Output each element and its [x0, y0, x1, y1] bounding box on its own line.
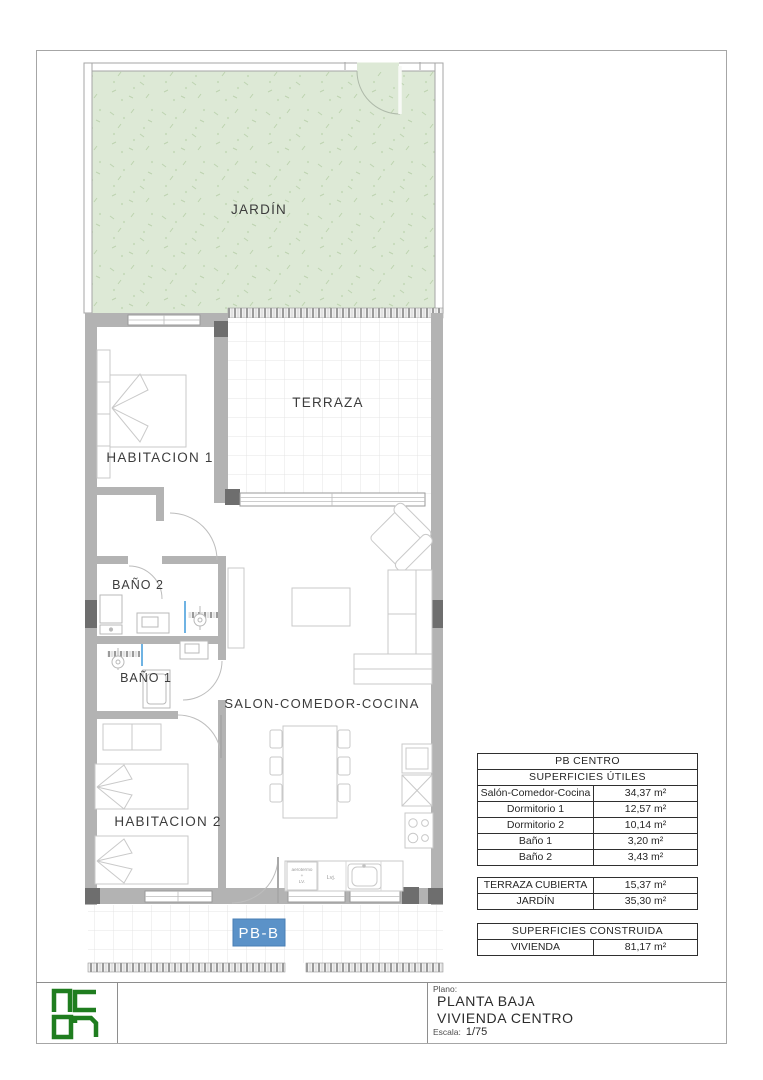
- label-salon: SALON-COMEDOR-COCINA: [224, 696, 419, 711]
- titleblock-divider-1: [117, 982, 118, 1043]
- table-row: TERRAZA CUBIERTA 15,37 m²: [478, 878, 697, 893]
- room-terraza: TERRAZA: [228, 318, 443, 500]
- unit-badge-label: PB-B: [238, 925, 279, 942]
- armchair-icon: [365, 501, 437, 573]
- scale-label: Escala:: [433, 1027, 461, 1037]
- garden-terrace-fence: [228, 308, 443, 318]
- room-area-value: 3,43 m²: [594, 850, 697, 865]
- room-area-label: JARDÍN: [478, 894, 594, 909]
- logo-glyph-7: [75, 1018, 96, 1037]
- logo-glyph-c: [75, 992, 96, 1010]
- scale-value: 1/75: [466, 1026, 487, 1038]
- front-fence-left: [88, 963, 285, 972]
- room-area-value: 15,37 m²: [594, 878, 697, 893]
- bed-icon: [95, 836, 188, 884]
- room-area-value: 12,57 m²: [594, 802, 697, 817]
- room-area-value: 35,30 m²: [594, 894, 697, 909]
- room-area-label: Baño 1: [478, 834, 594, 849]
- room-area-label: Dormitorio 1: [478, 802, 594, 817]
- unit-badge: PB-B: [233, 919, 285, 946]
- room-area-label: Salón-Comedor-Cocina: [478, 786, 594, 801]
- table-superficies-utiles: PB CENTRO SUPERFICIES ÚTILES Salón-Comed…: [477, 753, 698, 866]
- label-habitacion2: HABITACION 2: [114, 814, 221, 829]
- room-area-value: 3,20 m²: [594, 834, 697, 849]
- front-fence-right: [306, 963, 443, 972]
- door-habitacion2: [178, 715, 221, 758]
- label-bano1: BAÑO 1: [120, 671, 172, 685]
- room-area-value: 81,17 m²: [594, 940, 697, 955]
- room-area-label: Baño 2: [478, 850, 594, 865]
- plan-name-line1: PLANTA BAJA: [437, 993, 535, 1009]
- table-row: Salón-Comedor-Cocina 34,37 m²: [478, 785, 697, 801]
- label-habitacion1: HABITACION 1: [106, 450, 213, 465]
- sofa-icon: [354, 570, 432, 684]
- plan-name-line2: VIVIENDA CENTRO: [437, 1010, 574, 1026]
- door-habitacion1: [170, 513, 217, 560]
- table-row: Baño 2 3,43 m²: [478, 849, 697, 865]
- label-terraza: TERRAZA: [292, 395, 363, 410]
- bed-icon: [110, 374, 186, 447]
- label-aerotermo-2: +: [301, 873, 304, 878]
- room-area-value: 34,37 m²: [594, 786, 697, 801]
- table-title: PB CENTRO: [478, 754, 697, 769]
- table-row: VIVIENDA 81,17 m²: [478, 939, 697, 955]
- logo-glyph-n: [54, 991, 70, 1012]
- table-title: SUPERFICIES CONSTRUIDA: [478, 924, 697, 939]
- table-row: Baño 1 3,20 m²: [478, 833, 697, 849]
- dining-table-icon: [270, 726, 350, 818]
- coffee-table-icon: [292, 588, 350, 626]
- table-subtitle: SUPERFICIES ÚTILES: [478, 769, 697, 785]
- logo-glyph-0: [54, 1017, 71, 1037]
- table-row: Dormitorio 2 10,14 m²: [478, 817, 697, 833]
- room-jardin: JARDÍN: [84, 62, 443, 313]
- table-superficies-exteriores: TERRAZA CUBIERTA 15,37 m² JARDÍN 35,30 m…: [477, 877, 698, 910]
- bathroom2-fixtures: [100, 595, 218, 634]
- label-jardin: JARDÍN: [231, 202, 287, 217]
- floor-plan: JARDÍN TERRAZA: [0, 0, 763, 1080]
- nc07-logo: [51, 988, 101, 1040]
- scale-row: Escala:1/75: [433, 1026, 487, 1038]
- label-bano2: BAÑO 2: [112, 578, 164, 592]
- bed-icon: [95, 764, 188, 809]
- label-lavadero: Lvj.: [327, 875, 336, 881]
- table-row: Dormitorio 1 12,57 m²: [478, 801, 697, 817]
- garden-gate-opening: [357, 63, 399, 73]
- room-area-label: VIVIENDA: [478, 940, 594, 955]
- titleblock-divider-2: [427, 982, 428, 1043]
- titleblock-divider-top: [36, 982, 726, 983]
- stove-icon: [405, 813, 433, 848]
- label-aerotermo-1: aerotermo: [292, 867, 313, 872]
- wardrobe-icon: [103, 724, 161, 750]
- table-row: JARDÍN 35,30 m²: [478, 893, 697, 909]
- door-bano1: [183, 661, 222, 700]
- tv-unit-icon: [228, 568, 244, 648]
- table-superficies-construida: SUPERFICIES CONSTRUIDA VIVIENDA 81,17 m²: [477, 923, 698, 956]
- room-area-label: TERRAZA CUBIERTA: [478, 878, 594, 893]
- room-area-label: Dormitorio 2: [478, 818, 594, 833]
- label-aerotermo-3: LV.: [299, 879, 305, 884]
- room-area-value: 10,14 m²: [594, 818, 697, 833]
